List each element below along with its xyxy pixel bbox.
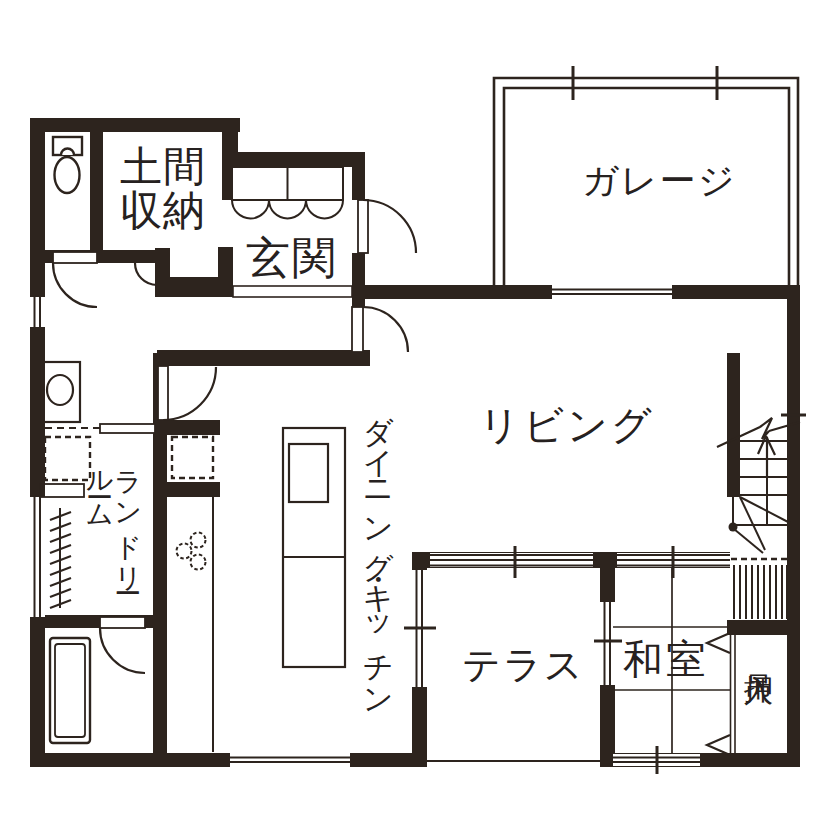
laundry-shelf [40,484,84,497]
bathtub-icon [50,638,90,743]
oshiire-fusuma [707,633,735,755]
floor-plan: ガレージ 土間収納 玄関 リビング ダイニング・キッチン ランドリールーム テラ… [0,0,840,840]
living-door [352,307,408,352]
stair-lower-treads [734,565,787,619]
kitchen-door [158,366,216,420]
room-label-washitsu: 和室 [623,638,709,680]
laundry-sliding-door [45,424,155,433]
fridge-icon [172,437,213,478]
genkan-step-edge [233,286,352,297]
room-label-living: リビング [479,404,655,446]
window-living-terrace [430,553,593,567]
window-left-upper [30,297,45,327]
stove-icon [177,533,206,570]
window-garage-living [552,285,672,299]
floor-plan-drawing [0,0,840,840]
front-door [358,200,416,253]
sink-icon [289,444,328,502]
toilet-icon [53,137,82,193]
shoe-cabinet-icon [232,167,343,219]
room-label-doma-storage: 土間収納 [120,145,214,233]
room-label-tsuri-oshiire: 吊押入 [738,652,774,762]
bathroom-door [100,617,145,673]
kitchen-island [283,428,345,667]
window-washitsu-west [600,602,615,685]
hanger-rack-icon [50,508,71,608]
window-left-laundry [30,497,45,617]
room-label-laundry: ランドリールーム [82,452,142,604]
room-label-garage: ガレージ [582,162,737,200]
washbasin-icon [42,362,80,422]
toilet-door [53,252,97,307]
fusuma-chevron-bottom [707,735,730,755]
room-label-dining-kitchen: ダイニング・キッチン [352,394,394,714]
window-bottom-kitchen [230,753,350,767]
fusuma-chevron-top [707,633,730,653]
doma-storage-door [135,263,157,285]
room-label-genkan: 玄関 [246,235,338,281]
room-label-terrace: テラス [462,646,585,686]
